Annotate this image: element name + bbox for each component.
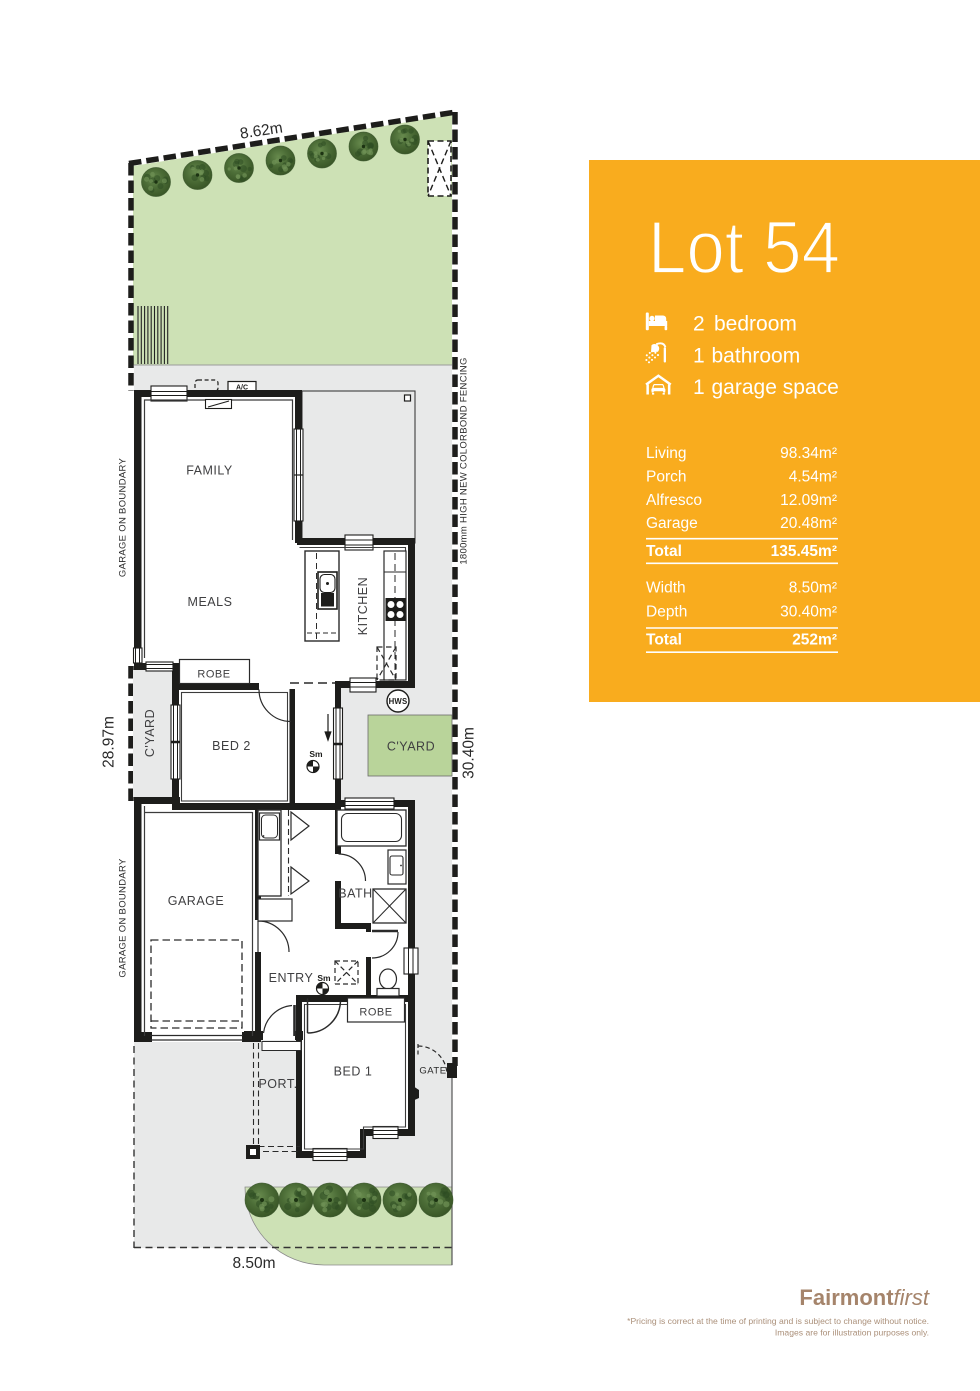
svg-text:Lot 54: Lot 54 <box>648 206 840 289</box>
svg-text:HWS: HWS <box>389 697 408 706</box>
svg-text:30.40m²: 30.40m² <box>780 604 837 621</box>
svg-text:GARAGE ON BOUNDARY: GARAGE ON BOUNDARY <box>118 458 129 578</box>
svg-text:98.34m²: 98.34m² <box>780 445 837 462</box>
svg-text:MEALS: MEALS <box>188 595 233 609</box>
svg-text:12.09m²: 12.09m² <box>780 492 837 509</box>
svg-text:Depth: Depth <box>646 604 687 621</box>
svg-text:1: 1 <box>693 376 705 399</box>
svg-text:PORT.: PORT. <box>258 1077 297 1091</box>
svg-text:ROBE: ROBE <box>359 1007 392 1019</box>
svg-text:20.48m²: 20.48m² <box>780 515 837 532</box>
svg-text:ENTRY: ENTRY <box>269 971 314 985</box>
svg-text:135.45m²: 135.45m² <box>771 543 837 560</box>
svg-text:Sm: Sm <box>309 749 323 759</box>
svg-text:C'YARD: C'YARD <box>143 709 157 757</box>
svg-text:Images are for illustration pu: Images are for illustration purposes onl… <box>775 1328 929 1338</box>
svg-text:30.40m: 30.40m <box>461 727 478 779</box>
svg-text:8.50m: 8.50m <box>232 1255 275 1272</box>
svg-text:garage space: garage space <box>712 376 839 399</box>
svg-text:4.54m²: 4.54m² <box>789 469 837 486</box>
svg-text:Porch: Porch <box>646 469 687 486</box>
svg-text:bedroom: bedroom <box>714 313 797 336</box>
svg-text:1: 1 <box>693 344 705 367</box>
svg-text:Total: Total <box>646 543 682 560</box>
svg-text:Sm: Sm <box>317 973 331 983</box>
svg-text:bathroom: bathroom <box>712 344 801 367</box>
svg-text:Total: Total <box>646 632 682 649</box>
svg-text:FAMILY: FAMILY <box>186 464 233 478</box>
svg-text:1800mm HIGH NEW COLORBOND FENC: 1800mm HIGH NEW COLORBOND FENCING <box>459 357 470 564</box>
svg-text:BED 1: BED 1 <box>334 1065 373 1079</box>
svg-text:GARAGE: GARAGE <box>168 894 225 908</box>
svg-text:8.50m²: 8.50m² <box>789 580 837 597</box>
svg-text:Living: Living <box>646 445 687 462</box>
svg-text:GARAGE ON BOUNDARY: GARAGE ON BOUNDARY <box>118 858 129 978</box>
svg-text:GATE: GATE <box>419 1066 446 1077</box>
svg-text:2: 2 <box>693 313 705 336</box>
svg-text:BATH: BATH <box>338 887 372 901</box>
svg-text:KITCHEN: KITCHEN <box>356 577 370 635</box>
svg-text:C'YARD: C'YARD <box>387 740 435 754</box>
svg-text:252m²: 252m² <box>792 632 837 649</box>
svg-text:Garage: Garage <box>646 515 698 532</box>
svg-text:Fairmontfirst: Fairmontfirst <box>799 1285 929 1310</box>
svg-text:*Pricing is correct at the tim: *Pricing is correct at the time of print… <box>627 1316 929 1326</box>
svg-text:BED 2: BED 2 <box>212 739 251 753</box>
svg-text:ROBE: ROBE <box>197 669 230 681</box>
svg-text:28.97m: 28.97m <box>101 716 118 768</box>
svg-text:Width: Width <box>646 580 686 597</box>
svg-text:Alfresco: Alfresco <box>646 492 702 509</box>
